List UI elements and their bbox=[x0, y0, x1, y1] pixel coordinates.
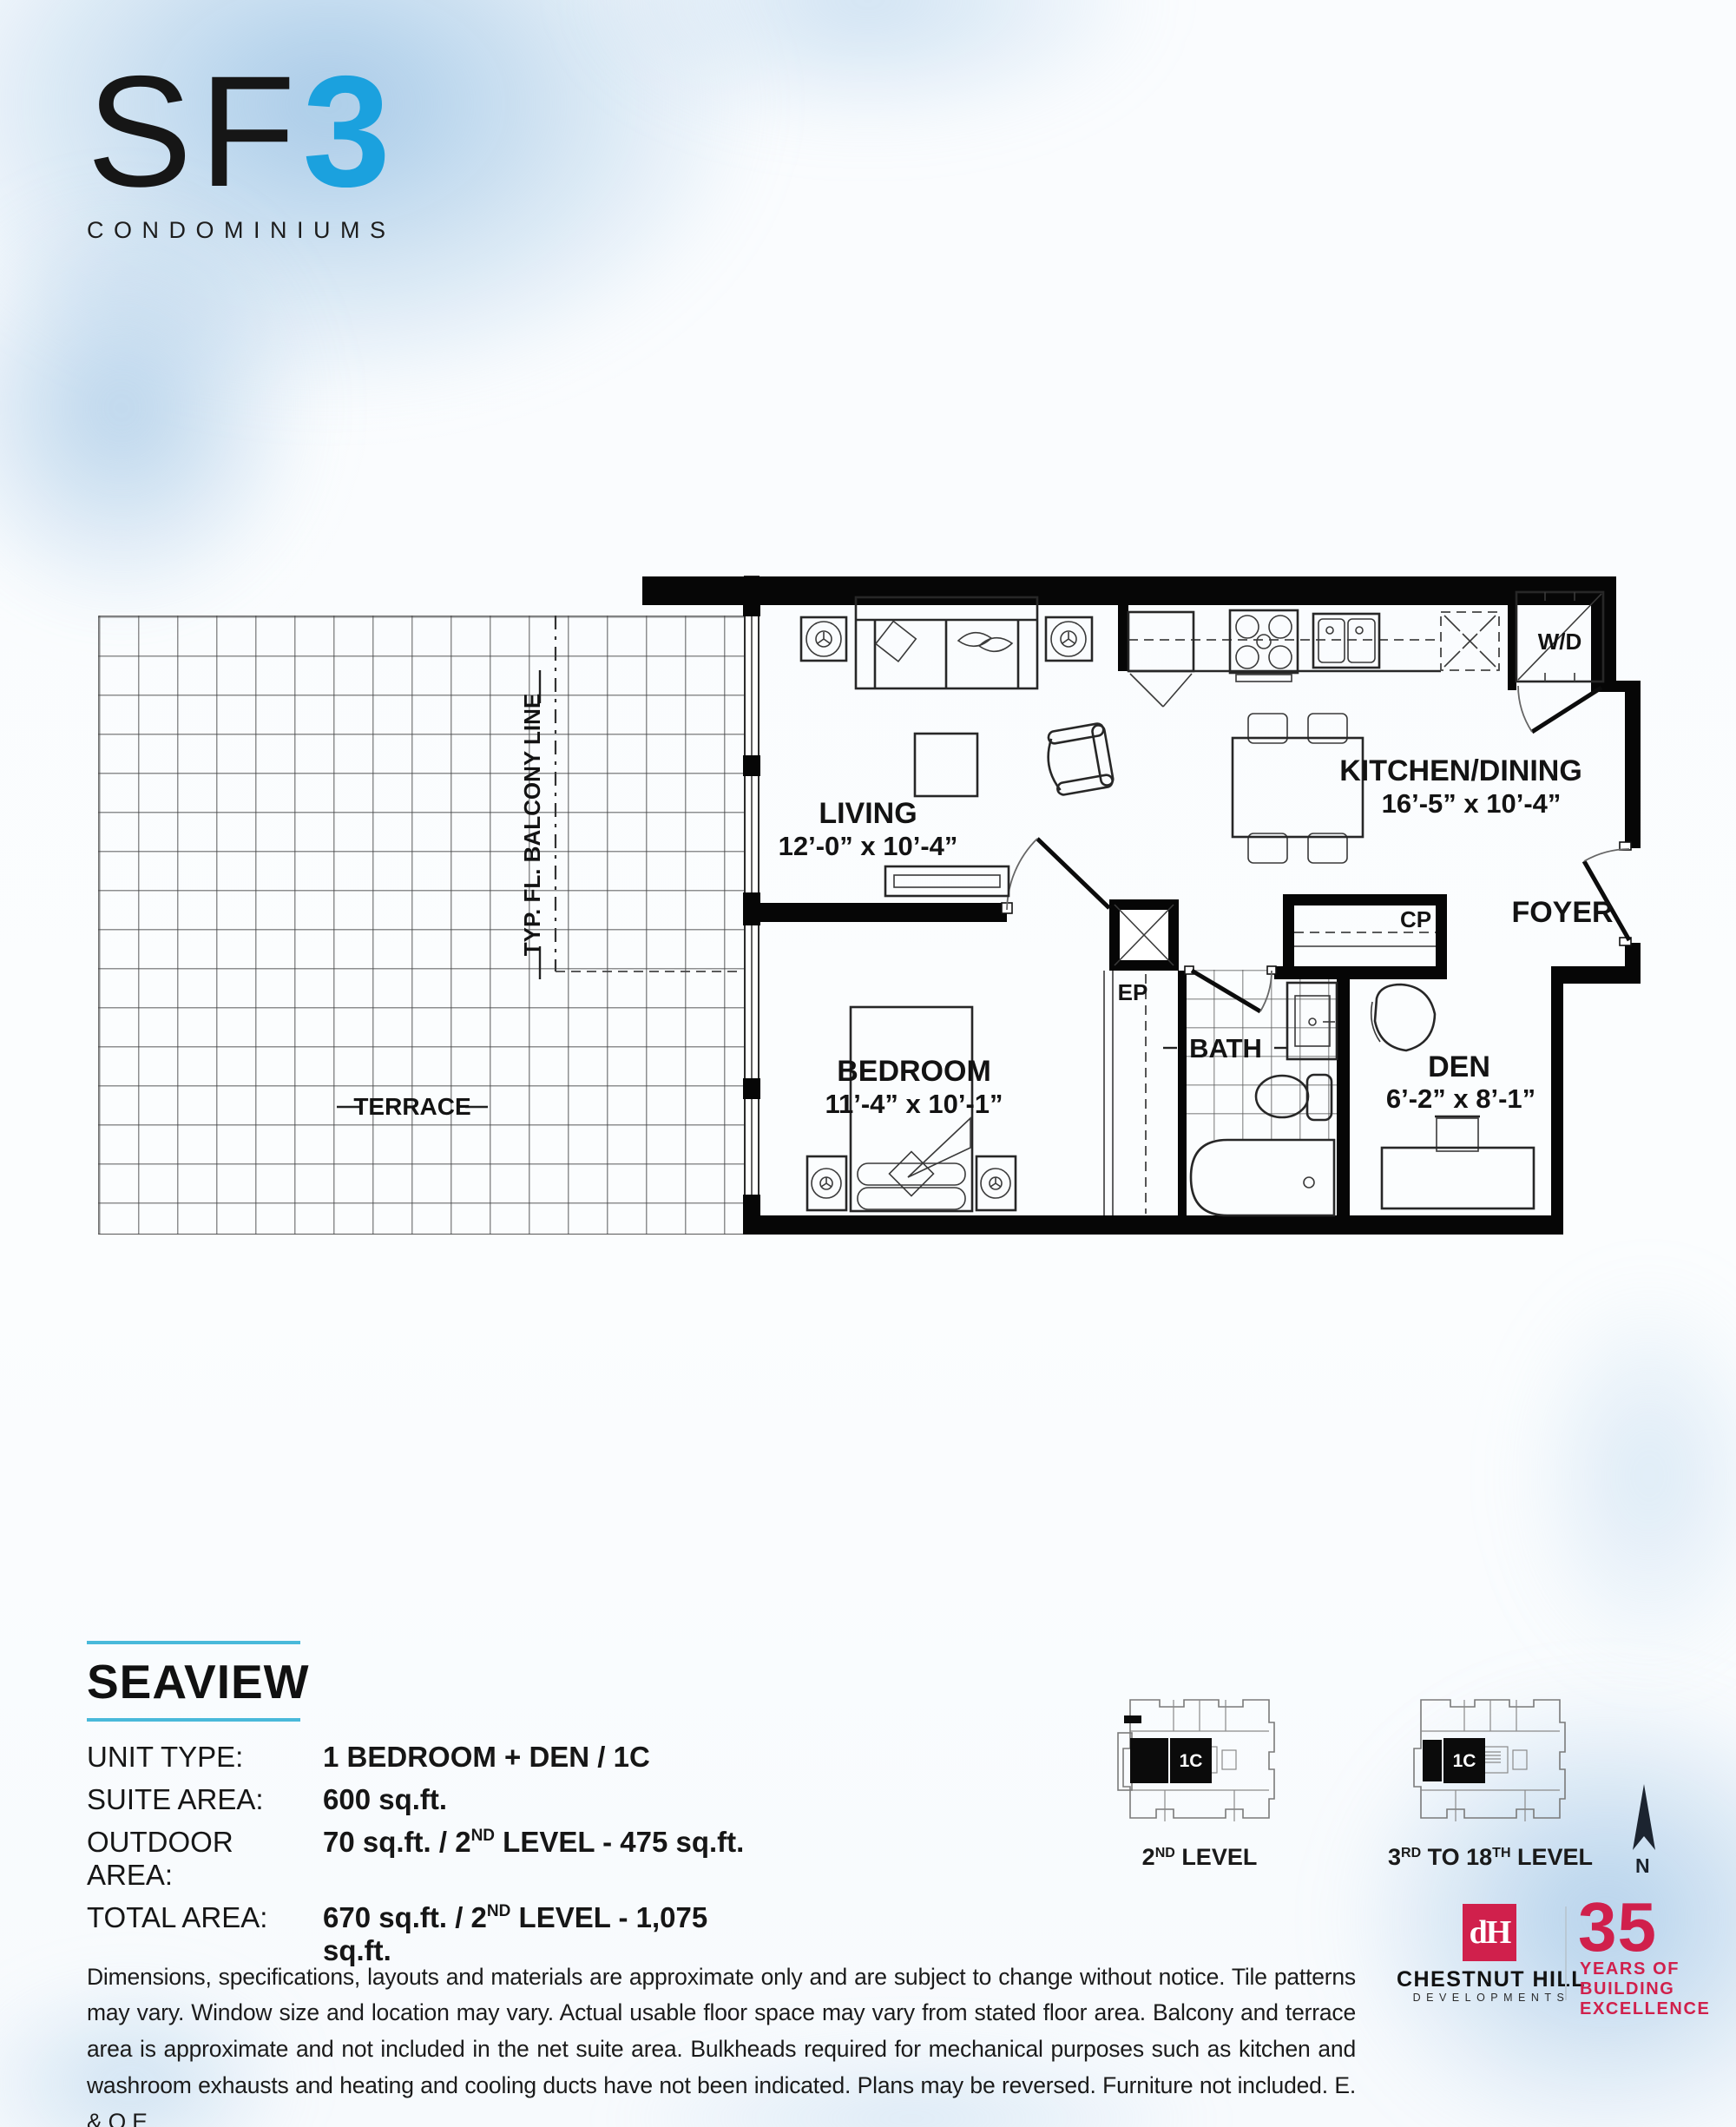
anniversary-number: 35 bbox=[1578, 1887, 1657, 1967]
terrace-name: TERRACE bbox=[353, 1093, 470, 1120]
outdoor-area-row: OUTDOOR AREA: 70 sq.ft. / 2ND LEVEL - 47… bbox=[87, 1826, 746, 1892]
brand-sf: SF bbox=[87, 43, 303, 220]
outdoor-area-label: OUTDOOR AREA: bbox=[87, 1826, 323, 1892]
building-label: BUILDING bbox=[1580, 1979, 1710, 1999]
brand-3: 3 bbox=[303, 43, 391, 220]
floor-plan: TYP. FL. BALCONY LINE TERRACE bbox=[69, 556, 1684, 1276]
kitchen-label: KITCHEN/DINING bbox=[1339, 754, 1582, 787]
armchair bbox=[1043, 722, 1115, 796]
ep-shaft: EP bbox=[1104, 905, 1174, 1215]
den-desk bbox=[1382, 1116, 1534, 1208]
unit-spec-table: UNIT TYPE: 1 BEDROOM + DEN / 1C SUITE AR… bbox=[87, 1741, 746, 1967]
unit-summary: SEAVIEW UNIT TYPE: 1 BEDROOM + DEN / 1C … bbox=[87, 1641, 746, 1977]
suite-area-row: SUITE AREA: 600 sq.ft. bbox=[87, 1783, 746, 1816]
developer-subtitle: DEVELOPMENTS bbox=[1391, 1992, 1591, 2004]
keyplan1-unit-label: 1C bbox=[1180, 1751, 1203, 1771]
kitchen-dims: 16’-5” x 10’-4” bbox=[1382, 788, 1562, 819]
developer-name: CHESTNUT HILL bbox=[1391, 1967, 1591, 1992]
cp-label: CP bbox=[1400, 906, 1431, 932]
bathtub bbox=[1191, 1140, 1334, 1215]
balcony-line-label: TYP. FL. BALCONY LINE bbox=[519, 694, 545, 956]
accent-rule-top bbox=[87, 1641, 300, 1644]
floorplan-sheet: SF3 CONDOMINIUMS TYP. FL. BALCONY LINE T… bbox=[0, 0, 1736, 2127]
bath-vanity bbox=[1287, 983, 1337, 1059]
terrace-label: TERRACE bbox=[337, 1093, 488, 1120]
balcony-line: TYP. FL. BALCONY LINE bbox=[519, 616, 743, 979]
wd-label: W/D bbox=[1538, 629, 1582, 655]
watercolor-wash-top-center bbox=[451, 0, 1285, 191]
logo-divider bbox=[1565, 1906, 1567, 2000]
unit-type-label: UNIT TYPE: bbox=[87, 1741, 323, 1774]
suite-area-value: 600 sq.ft. bbox=[323, 1783, 447, 1816]
laundry-door bbox=[1518, 686, 1601, 732]
ep-label: EP bbox=[1118, 979, 1148, 1005]
fridge bbox=[1128, 612, 1193, 671]
coat-closet: CP bbox=[1294, 906, 1436, 946]
optional-cabinet bbox=[1441, 612, 1499, 670]
accent-rule-bottom bbox=[87, 1718, 300, 1722]
window-wall bbox=[743, 576, 760, 1235]
bedroom-dims: 11’-4” x 10’-1” bbox=[825, 1089, 1003, 1119]
chestnut-hill-monogram-icon: dH bbox=[1463, 1904, 1516, 1961]
keyplan-core bbox=[1478, 1747, 1527, 1773]
years-of-label: YEARS OF bbox=[1580, 1959, 1710, 1979]
total-area-label: TOTAL AREA: bbox=[87, 1901, 323, 1967]
tv-console bbox=[885, 866, 1009, 896]
keyplan-terrace-fill bbox=[1130, 1738, 1168, 1783]
den-label: DEN bbox=[1428, 1050, 1490, 1083]
coffee-table bbox=[915, 734, 977, 796]
bath-door bbox=[1185, 966, 1276, 1011]
foyer-label: FOYER bbox=[1511, 896, 1613, 929]
anniversary-text: YEARS OF BUILDING EXCELLENCE bbox=[1580, 1959, 1710, 2020]
dining-set bbox=[1233, 714, 1363, 863]
nightstand-right bbox=[976, 1156, 1016, 1210]
brand-subtitle: CONDOMINIUMS bbox=[87, 217, 396, 244]
unit-type-value: 1 BEDROOM + DEN / 1C bbox=[323, 1741, 650, 1774]
unit-name: SEAVIEW bbox=[87, 1654, 746, 1709]
total-area-value: 670 sq.ft. / 2ND LEVEL - 1,075 sq.ft. bbox=[323, 1901, 746, 1967]
nightstand-left bbox=[807, 1156, 846, 1210]
side-table-left bbox=[801, 617, 846, 661]
living-label: LIVING bbox=[819, 797, 917, 830]
den-dims: 6’-2” x 8’-1” bbox=[1386, 1083, 1535, 1114]
total-area-row: TOTAL AREA: 670 sq.ft. / 2ND LEVEL - 1,0… bbox=[87, 1901, 746, 1967]
bedroom-door bbox=[1007, 839, 1109, 910]
side-table-right bbox=[1046, 617, 1092, 661]
disclaimer-text: Dimensions, specifications, layouts and … bbox=[87, 1959, 1356, 2127]
den-chair bbox=[1371, 984, 1435, 1050]
brand-logo: SF3 CONDOMINIUMS bbox=[87, 52, 396, 244]
brand-wordmark: SF3 bbox=[87, 52, 396, 210]
kitchen-sink bbox=[1313, 614, 1379, 668]
keyplan-2nd-level: 1C bbox=[1113, 1689, 1286, 1835]
keyplan-3rd-18th-label: 3RD TO 18TH LEVEL bbox=[1382, 1844, 1599, 1871]
living-dims: 12’-0” x 10’-4” bbox=[779, 831, 958, 861]
toilet bbox=[1256, 1075, 1332, 1120]
outdoor-area-value: 70 sq.ft. / 2ND LEVEL - 475 sq.ft. bbox=[323, 1826, 744, 1892]
laundry-closet: W/D bbox=[1516, 592, 1603, 682]
compass-n-label: N bbox=[1635, 1854, 1650, 1878]
bath-label: BATH bbox=[1189, 1033, 1262, 1063]
keyplan-3rd-18th-level: 1C bbox=[1408, 1689, 1573, 1835]
keyplan2-unit-label: 1C bbox=[1453, 1751, 1476, 1771]
unit-type-row: UNIT TYPE: 1 BEDROOM + DEN / 1C bbox=[87, 1741, 746, 1774]
suite-area-label: SUITE AREA: bbox=[87, 1783, 323, 1816]
excellence-label: EXCELLENCE bbox=[1580, 1999, 1710, 2019]
keyplan-2nd-level-label: 2ND LEVEL bbox=[1113, 1844, 1286, 1871]
bedroom-label: BEDROOM bbox=[837, 1055, 991, 1088]
north-arrow-icon bbox=[1632, 1784, 1656, 1852]
sofa bbox=[856, 597, 1037, 688]
monogram-letters: dH bbox=[1470, 1913, 1510, 1952]
entry-door bbox=[1584, 842, 1631, 945]
watercolor-wash-right bbox=[1467, 1198, 1736, 1754]
keyplan-edge-fill bbox=[1423, 1740, 1442, 1781]
kitchen-counter bbox=[1128, 610, 1499, 707]
